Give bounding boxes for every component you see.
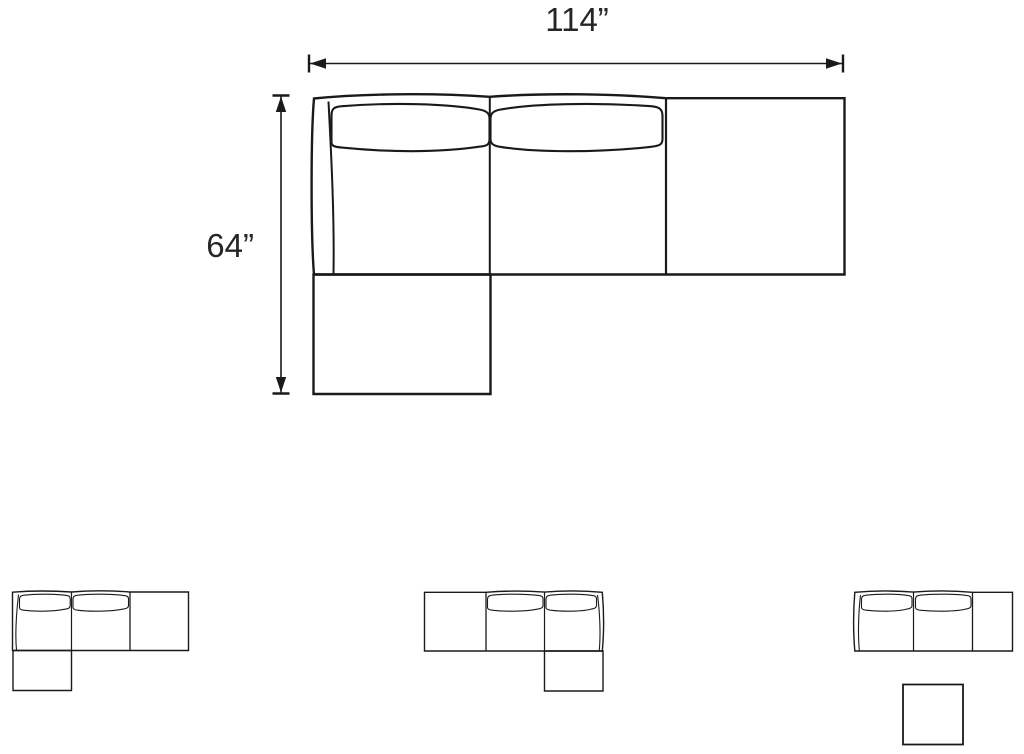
main-diagram: 114” 64” bbox=[206, 1, 844, 394]
thumb3-body-outline bbox=[854, 591, 1013, 651]
thumbnail-sectional-chaise-right[interactable] bbox=[425, 591, 604, 691]
height-arrowhead-top-icon bbox=[276, 97, 286, 113]
thumb2-arm-line bbox=[598, 595, 601, 651]
thumb1-arm-line bbox=[16, 595, 19, 651]
thumb2-body-outline bbox=[425, 591, 604, 651]
thumb3-arm-line bbox=[858, 595, 860, 651]
thumb1-chaise bbox=[13, 651, 72, 691]
chaise-outline bbox=[314, 275, 491, 395]
thumb1-body-outline bbox=[13, 591, 189, 651]
thumb3-ottoman bbox=[903, 685, 963, 745]
height-dimension-label: 64” bbox=[206, 227, 254, 264]
sofa-configurator-canvas: 114” 64” bbox=[0, 0, 1024, 754]
thumb2-cushion-right bbox=[546, 594, 597, 611]
width-dimension-label: 114” bbox=[545, 1, 609, 38]
thumbnail-sectional-chaise-left[interactable] bbox=[13, 591, 189, 691]
line-art: 114” 64” bbox=[13, 1, 1013, 745]
thumb1-cushion-right bbox=[73, 594, 129, 611]
sofa-body-outline bbox=[312, 94, 845, 274]
thumb3-cushion-right bbox=[916, 594, 972, 611]
thumb2-cushion-left bbox=[488, 594, 544, 611]
back-cushion-left bbox=[332, 104, 490, 151]
height-arrowhead-bottom-icon bbox=[276, 377, 286, 393]
back-cushion-right bbox=[491, 104, 663, 151]
height-dimension: 64” bbox=[206, 96, 289, 394]
width-arrowhead-right-icon bbox=[826, 58, 842, 69]
thumb2-chaise bbox=[545, 651, 604, 691]
thumbnail-sofa-with-ottoman[interactable] bbox=[854, 591, 1013, 745]
thumb3-cushion-left bbox=[862, 594, 913, 611]
width-dimension: 114” bbox=[309, 1, 843, 73]
thumb1-cushion-left bbox=[20, 594, 71, 611]
sofa-top-view bbox=[312, 94, 845, 394]
diagram-svg: 114” 64” bbox=[0, 0, 1024, 754]
width-arrowhead-left-icon bbox=[310, 58, 326, 69]
